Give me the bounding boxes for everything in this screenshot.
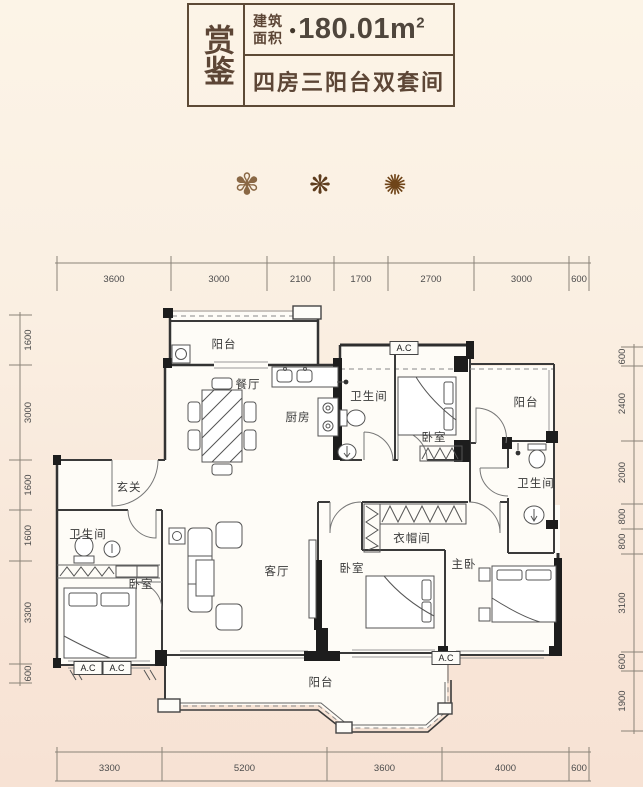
dimension-label: 1900 <box>617 690 628 711</box>
dimension-label: 1600 <box>23 525 34 546</box>
room-label: 阳台 <box>514 395 539 409</box>
dimension-label: 2000 <box>617 462 628 483</box>
dimension-label: 600 <box>571 274 587 285</box>
room-label: 卧室 <box>129 577 154 591</box>
room-label: 厨房 <box>286 411 311 424</box>
dimension-label: 3100 <box>617 592 628 613</box>
room-label: 餐厅 <box>236 377 261 391</box>
dimension-label: 2700 <box>420 274 441 285</box>
dimension-label: 2400 <box>617 393 628 414</box>
dimension-label: 800 <box>617 509 628 525</box>
room-label: 卫生间 <box>517 476 555 490</box>
dimension-label: 3000 <box>23 402 34 423</box>
room-label: 卧室 <box>422 430 447 444</box>
room-label: 衣帽间 <box>393 531 431 545</box>
washing-machine <box>172 345 190 363</box>
dimension-label: 2100 <box>290 274 311 285</box>
dimension-label: 3600 <box>103 274 124 285</box>
room-label: 卧室 <box>340 561 365 575</box>
tv-cabinet <box>309 540 316 618</box>
room-label: 客厅 <box>265 564 290 578</box>
room-label: 玄关 <box>117 480 142 494</box>
dimension-label: 600 <box>617 349 628 365</box>
dimension-label: 1600 <box>23 474 34 495</box>
dimension-label: 1700 <box>350 274 371 285</box>
floorplan: A.CA.CA.CA.C 360030002100170027003000600… <box>0 0 643 787</box>
room-label: 卫生间 <box>350 389 388 403</box>
bed <box>398 377 456 435</box>
room-label: A.C <box>396 343 412 353</box>
dimension-label: 5200 <box>234 763 255 774</box>
room-label: A.C <box>80 663 96 673</box>
room-label: A.C <box>109 663 125 673</box>
dimension-label: 600 <box>23 666 34 682</box>
dimension-label: 3000 <box>511 274 532 285</box>
dimension-label: 3300 <box>99 763 120 774</box>
dimension-label: 800 <box>617 534 628 550</box>
room-label: 卫生间 <box>69 527 107 541</box>
dimension-label: 600 <box>571 763 587 774</box>
bed <box>64 588 136 658</box>
dimension-label: 600 <box>617 654 628 670</box>
bed <box>366 576 434 628</box>
room-label: A.C <box>438 653 454 663</box>
dimension-label: 3000 <box>208 274 229 285</box>
dimension-label: 3600 <box>374 763 395 774</box>
room-label: 阳台 <box>212 337 237 351</box>
room-label: 主卧 <box>452 558 477 571</box>
dimension-label: 3300 <box>23 602 34 623</box>
dimension-label: 1600 <box>23 329 34 350</box>
dimension-label: 4000 <box>495 763 516 774</box>
room-label: 阳台 <box>309 675 334 689</box>
